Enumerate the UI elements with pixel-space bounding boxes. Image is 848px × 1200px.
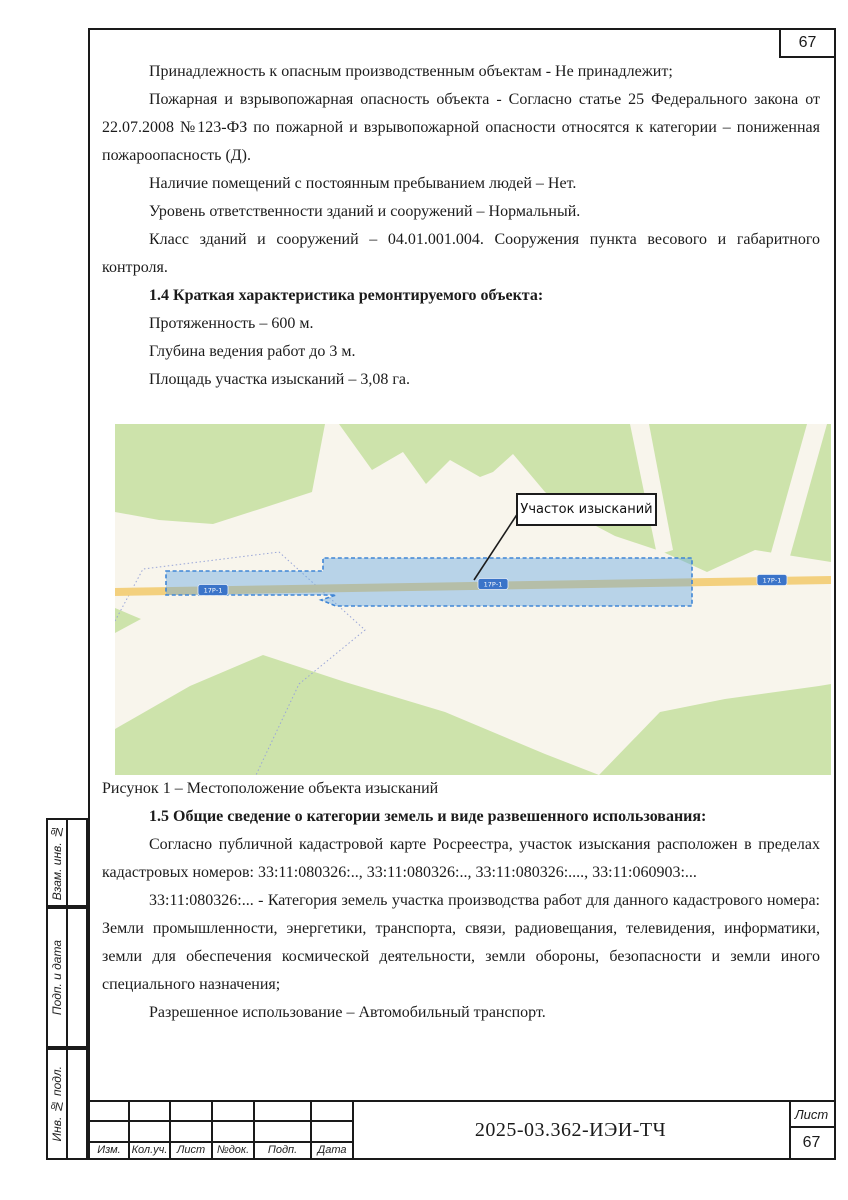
body-paragraph: Уровень ответственности зданий и сооруже… bbox=[102, 198, 820, 226]
body-paragraph: Класс зданий и сооружений – 04.01.001.00… bbox=[102, 226, 820, 282]
body-paragraph: Глубина ведения работ до 3 м. bbox=[102, 338, 820, 366]
sheet-label: Лист bbox=[789, 1102, 834, 1126]
tb-col-izm: Изм. bbox=[90, 1141, 128, 1158]
divider bbox=[66, 820, 68, 905]
body-paragraph: Пожарная и взрывопожарная опасность объе… bbox=[102, 86, 820, 170]
tb-col-ndok: №док. bbox=[213, 1141, 253, 1158]
divider bbox=[66, 909, 68, 1046]
road-badge: 17Р-1 bbox=[757, 575, 787, 586]
map-figure: 17Р-1 17Р-1 17Р-1 Участок изысканий bbox=[115, 424, 831, 775]
body-paragraph: Принадлежность к опасным производственны… bbox=[102, 58, 820, 86]
stamp-cell-label: Взам. инв. № bbox=[50, 825, 64, 900]
body-paragraph: Наличие помещений с постоянным пребывани… bbox=[102, 170, 820, 198]
stamp-cell-vzam: Взам. инв. № bbox=[46, 818, 88, 907]
document-code: 2025-03.362-ИЭИ-ТЧ bbox=[352, 1102, 789, 1158]
tb-col-data: Дата bbox=[312, 1141, 352, 1158]
road-badge: 17Р-1 bbox=[478, 579, 508, 590]
road-badge: 17Р-1 bbox=[198, 585, 228, 596]
tb-col-podp: Подп. bbox=[255, 1141, 310, 1158]
body-paragraph: 33:11:080326:... - Категория земель учас… bbox=[102, 887, 820, 999]
svg-text:17Р-1: 17Р-1 bbox=[763, 576, 782, 584]
figure-caption: Рисунок 1 – Местоположение объекта изыск… bbox=[102, 775, 820, 803]
tb-col-koluch: Кол.уч. bbox=[130, 1141, 169, 1158]
sheet-number: 67 bbox=[789, 1128, 834, 1158]
document-page: 67 Принадлежность к опасным производстве… bbox=[0, 0, 848, 1200]
body-text: Принадлежность к опасным производственны… bbox=[102, 28, 820, 1027]
body-paragraph: Согласно публичной кадастровой карте Рос… bbox=[102, 831, 820, 887]
map-canvas: 17Р-1 17Р-1 17Р-1 bbox=[115, 424, 831, 775]
title-block: Изм. Кол.уч. Лист №док. Подп. Дата 2025-… bbox=[88, 1100, 836, 1160]
divider bbox=[90, 1120, 352, 1122]
body-paragraph: Разрешенное использование – Автомобильны… bbox=[102, 999, 820, 1027]
svg-text:17Р-1: 17Р-1 bbox=[484, 580, 503, 588]
tb-col-list: Лист bbox=[171, 1141, 211, 1158]
section-heading-1-5: 1.5 Общие сведение о категории земель и … bbox=[102, 803, 820, 831]
svg-text:17Р-1: 17Р-1 bbox=[204, 586, 223, 594]
stamp-cell-podp: Подп. и дата bbox=[46, 907, 88, 1048]
section-heading-1-4: 1.4 Краткая характеристика ремонтируемог… bbox=[102, 282, 820, 310]
stamp-cell-label: Подп. и дата bbox=[50, 940, 64, 1015]
survey-area-callout: Участок изысканий bbox=[516, 493, 657, 526]
body-paragraph: Протяженность – 600 м. bbox=[102, 310, 820, 338]
body-paragraph: Площадь участка изысканий – 3,08 га. bbox=[102, 366, 820, 394]
divider bbox=[66, 1050, 68, 1158]
stamp-cell-label: Инв. № подл. bbox=[50, 1066, 64, 1141]
stamp-sidebar: Взам. инв. № Подп. и дата Инв. № подл. bbox=[46, 818, 88, 1160]
stamp-cell-inv: Инв. № подл. bbox=[46, 1048, 88, 1160]
survey-area-callout-text: Участок изысканий bbox=[520, 502, 652, 517]
